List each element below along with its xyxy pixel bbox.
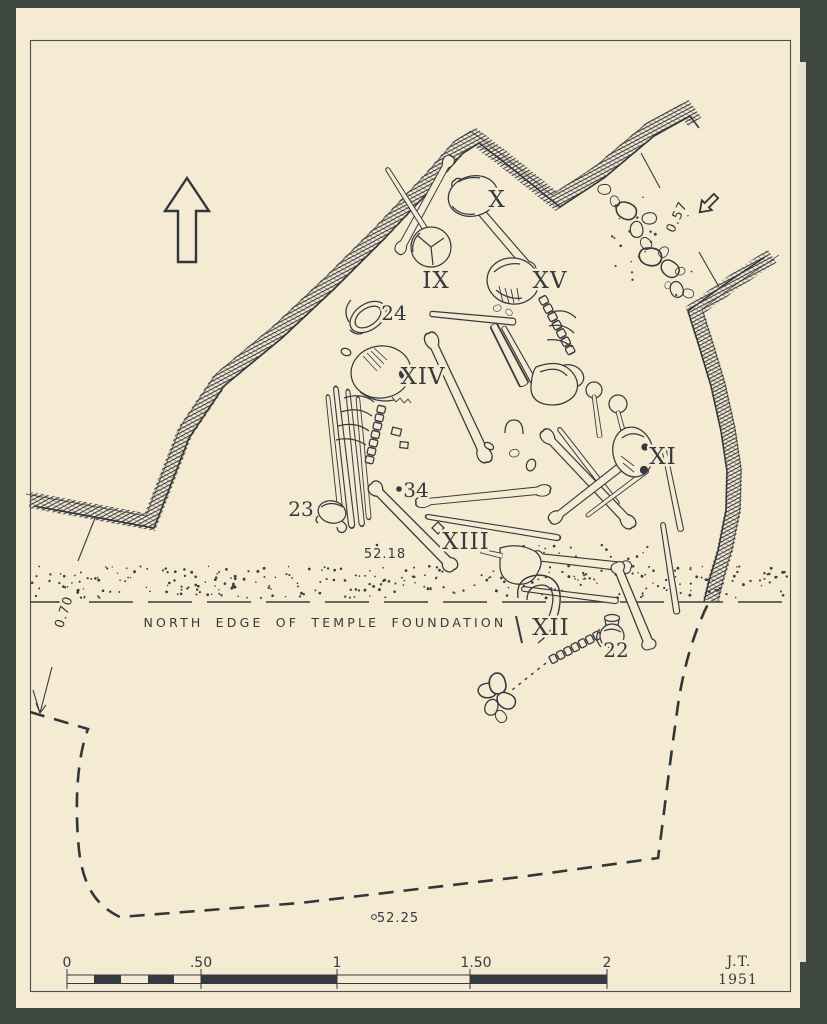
scale-tick-1: 1 [333,955,342,971]
find-label-22: 22 [603,638,628,662]
burial-label-x: X [488,187,505,213]
scale-tick-0: 0 [63,955,72,971]
find-spot-dot [396,486,402,492]
burial-label-xiii: XIII [442,529,490,555]
elevation-dot [376,544,379,547]
elevation-52-25: 52.25 [377,911,419,926]
paper [16,8,800,1008]
burial-label-xii: XII [532,615,570,641]
paper-edge-sliver [798,62,806,962]
paper-sheet [16,8,806,1008]
find-label-24: 24 [381,301,406,325]
elevation-52-18: 52.18 [364,547,406,562]
find-label-34: 34 [403,478,428,502]
find-label-23: 23 [288,497,313,521]
burial-label-xv: XV [533,268,568,294]
burial-label-xiv: XIV [400,364,445,390]
scale-tick-2: 2 [603,955,612,971]
burial-label-ix: IX [422,268,449,294]
burial-label-xi: XI [649,444,676,470]
foundation-caption: NORTH EDGE OF TEMPLE FOUNDATION [144,615,507,630]
scale-tick-050: .50 [190,955,212,971]
signature-year: 1951 [718,972,758,988]
scale-tick-150: 1.50 [460,955,491,971]
excavation-plan-drawing: IX X XI XII XIII XIV XV 22 23 24 34 52.1… [0,0,827,1024]
site-plan-photo: IX X XI XII XIII XIV XV 22 23 24 34 52.1… [0,0,827,1024]
signature-initials: J.T. [725,954,752,970]
skull-ix [411,227,451,267]
